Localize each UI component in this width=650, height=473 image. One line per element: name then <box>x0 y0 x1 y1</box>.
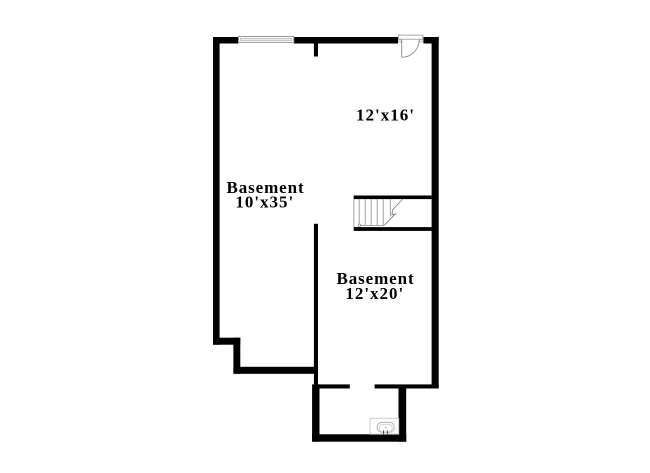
svg-text:10'x35': 10'x35' <box>235 193 294 212</box>
svg-text:12'x20': 12'x20' <box>345 284 404 303</box>
svg-text:12'x16': 12'x16' <box>356 106 415 125</box>
